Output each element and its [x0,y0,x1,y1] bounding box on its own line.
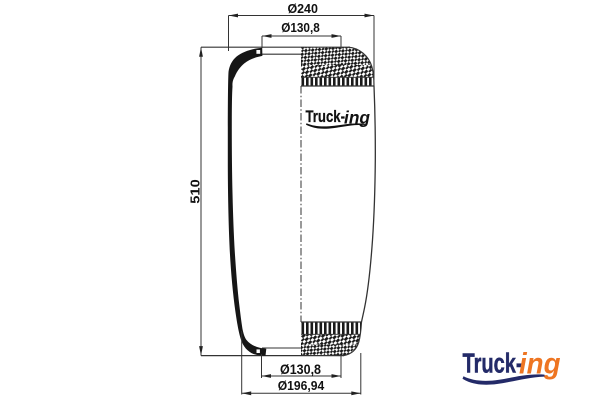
svg-text:Truck-: Truck- [306,107,346,126]
svg-text:Ø130,8: Ø130,8 [281,21,320,35]
svg-text:510: 510 [189,179,203,204]
svg-text:Ø240: Ø240 [287,2,318,16]
svg-text:Truck-: Truck- [463,348,523,379]
svg-text:Ø130,8: Ø130,8 [280,361,321,377]
svg-text:Ø196,94: Ø196,94 [278,378,325,393]
